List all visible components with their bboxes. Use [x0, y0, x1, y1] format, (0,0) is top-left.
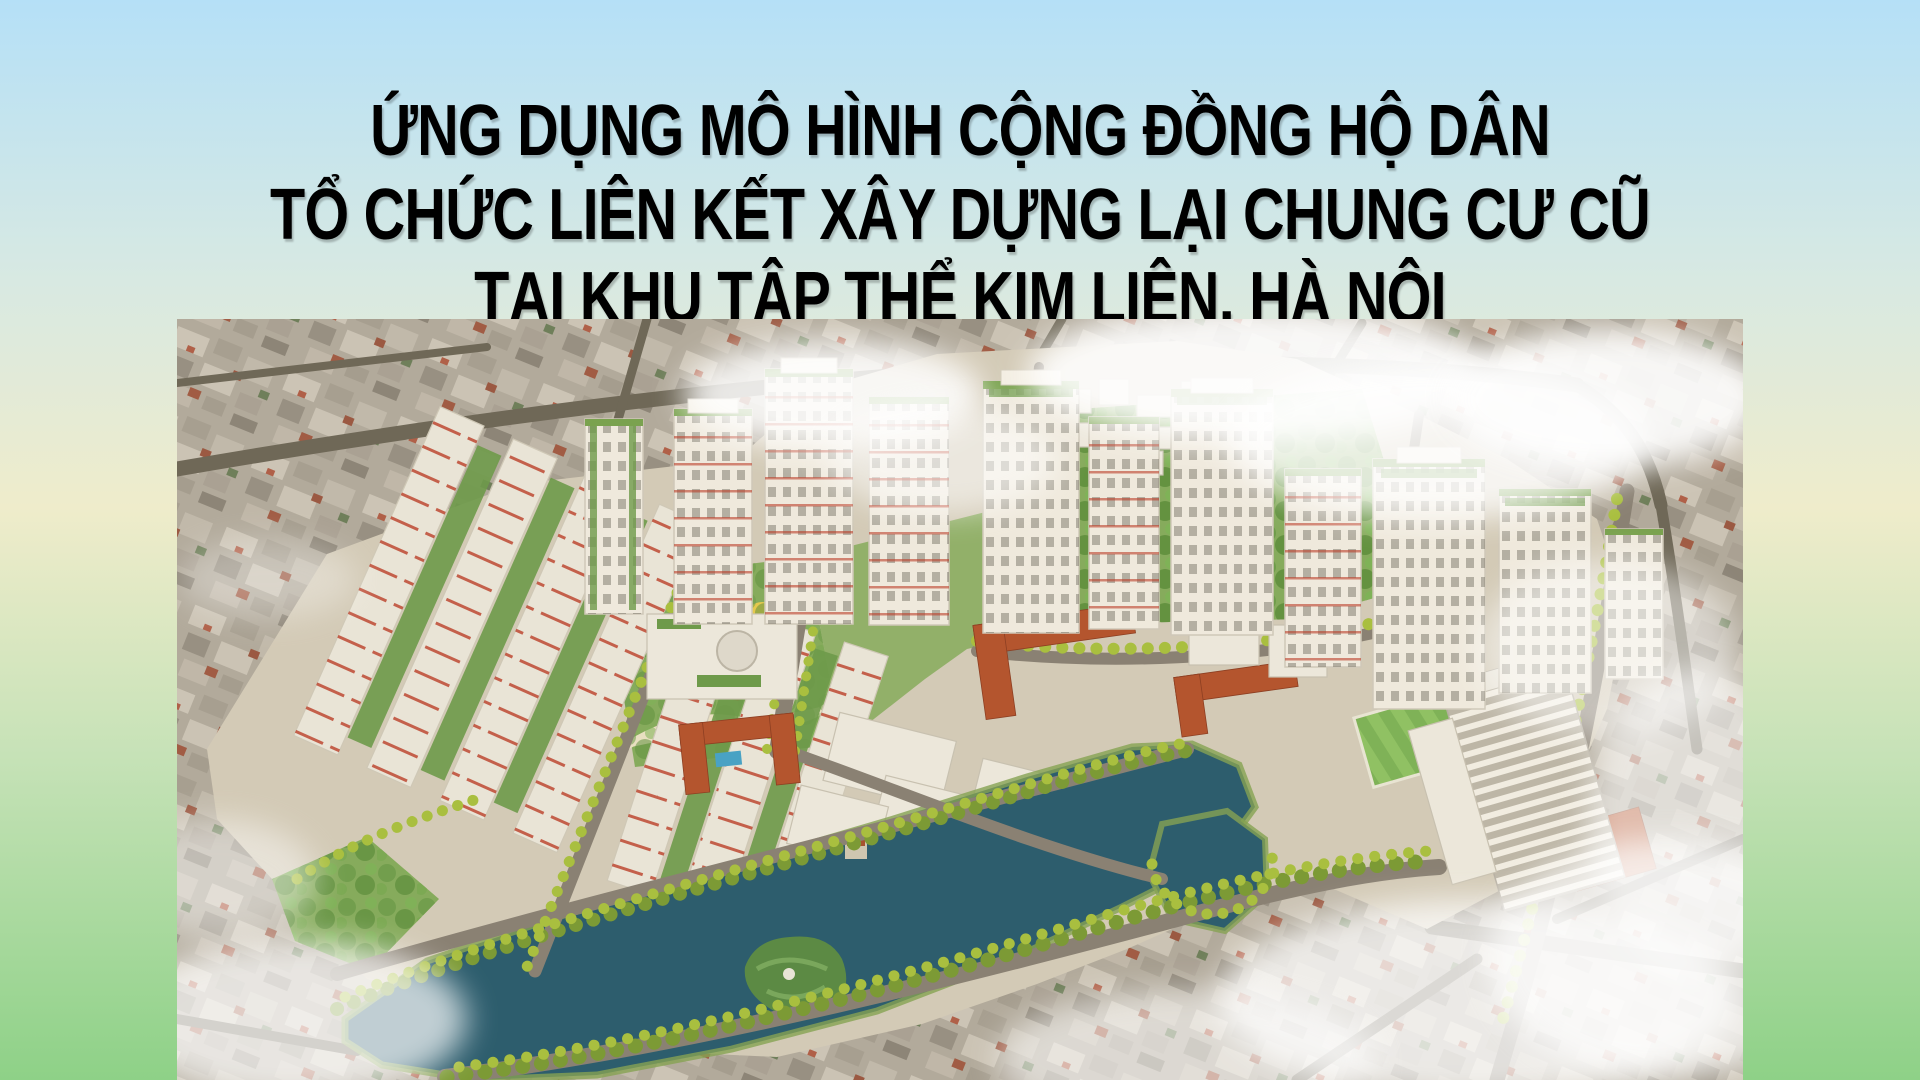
title-line-2: TỔ CHỨC LIÊN KẾT XÂY DỰNG LẠI CHUNG CƯ C… — [192, 174, 1728, 258]
masterplan-aerial-image — [177, 319, 1743, 1080]
tower-podium — [647, 614, 797, 699]
aerial-render-graphic — [177, 319, 1743, 1080]
page-title: ỨNG DỤNG MÔ HÌNH CỘNG ĐỒNG HỘ DÂN TỔ CHỨ… — [0, 90, 1920, 341]
slide-root: ỨNG DỤNG MÔ HÌNH CỘNG ĐỒNG HỘ DÂN TỔ CHỨ… — [0, 0, 1920, 1080]
title-line-1: ỨNG DỤNG MÔ HÌNH CỘNG ĐỒNG HỘ DÂN — [192, 90, 1728, 174]
